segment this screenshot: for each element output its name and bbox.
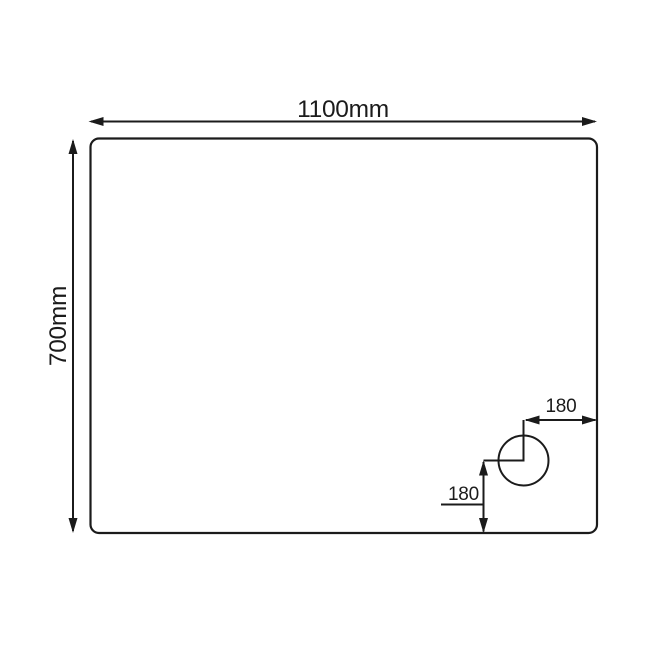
waste-offset-right-label: 180 [545, 396, 576, 417]
dimension-drawing-canvas: 1100mm 700mm 180 180 [0, 0, 650, 650]
arrowhead-down-icon [69, 518, 78, 533]
shower-tray-dimension-diagram: 1100mm 700mm 180 180 [0, 0, 650, 650]
width-dimension-label: 1100mm [297, 96, 389, 123]
waste-offset-bottom-label: 180 [448, 484, 479, 505]
depth-dimension-label: 700mm [45, 286, 72, 366]
arrowhead-up-icon [69, 139, 78, 154]
tray-outline [91, 139, 598, 534]
arrowhead-left-icon [89, 117, 104, 126]
depth-dimension: 700mm [45, 139, 78, 533]
arrowhead-right-icon [582, 117, 597, 126]
width-dimension: 1100mm [89, 96, 598, 126]
